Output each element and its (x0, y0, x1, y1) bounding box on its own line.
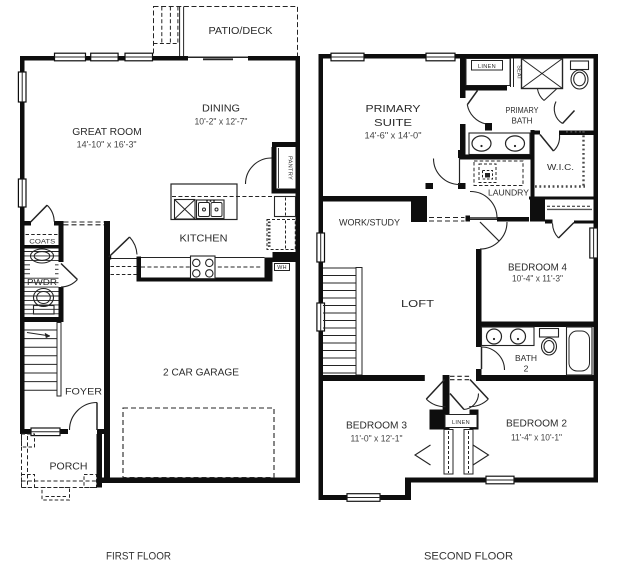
svg-text:11'-4" x 10'-1": 11'-4" x 10'-1" (511, 433, 562, 443)
svg-text:SUITE: SUITE (374, 117, 412, 129)
svg-text:PATIO/DECK: PATIO/DECK (209, 25, 273, 37)
svg-text:14'-6" x 14'-0": 14'-6" x 14'-0" (365, 131, 422, 141)
svg-text:BEDROOM 3: BEDROOM 3 (346, 420, 407, 432)
svg-text:2: 2 (524, 364, 529, 374)
svg-text:BATH: BATH (515, 353, 537, 363)
svg-text:10'-2" x 12'-7": 10'-2" x 12'-7" (195, 117, 248, 127)
svg-text:PANTRY: PANTRY (287, 156, 293, 180)
svg-text:LINEN: LINEN (478, 64, 496, 70)
svg-text:PRIMARY: PRIMARY (506, 106, 540, 115)
svg-text:BEDROOM 4: BEDROOM 4 (508, 262, 567, 274)
svg-text:LOFT: LOFT (401, 298, 435, 310)
svg-text:COATS: COATS (29, 239, 56, 246)
svg-text:10'-4" x 11'-3": 10'-4" x 11'-3" (512, 274, 563, 284)
svg-text:PRIMARY: PRIMARY (366, 103, 421, 115)
svg-text:BEDROOM 2: BEDROOM 2 (506, 418, 567, 430)
svg-text:KITCHEN: KITCHEN (180, 233, 228, 245)
svg-text:PORCH: PORCH (50, 462, 88, 473)
svg-text:FOYER: FOYER (65, 387, 102, 398)
svg-text:DINING: DINING (202, 103, 240, 115)
svg-text:PWDR: PWDR (27, 277, 57, 287)
svg-text:GREAT ROOM: GREAT ROOM (72, 126, 142, 138)
svg-text:LINEN: LINEN (452, 420, 470, 426)
svg-text:11'-0" x 12'-1": 11'-0" x 12'-1" (351, 434, 403, 444)
svg-text:W.I.C.: W.I.C. (547, 162, 574, 172)
svg-text:SEAT: SEAT (516, 65, 522, 80)
svg-text:FIRST FLOOR: FIRST FLOOR (106, 551, 171, 563)
svg-text:14'-10" x 16'-3": 14'-10" x 16'-3" (77, 140, 137, 150)
svg-text:2 CAR GARAGE: 2 CAR GARAGE (163, 367, 239, 379)
svg-text:SECOND FLOOR: SECOND FLOOR (424, 551, 513, 563)
svg-text:WORK/STUDY: WORK/STUDY (339, 218, 401, 229)
svg-text:WH: WH (277, 265, 286, 271)
svg-text:BATH: BATH (512, 117, 533, 126)
svg-text:LAUNDRY: LAUNDRY (488, 188, 529, 198)
